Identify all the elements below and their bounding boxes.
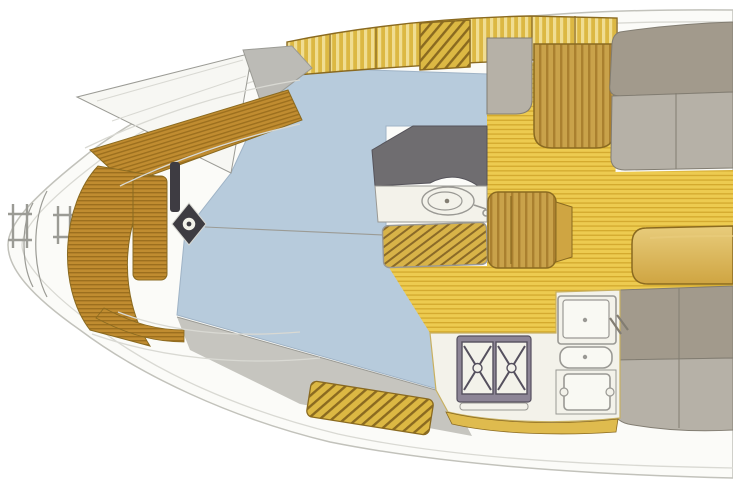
seat-locker-side bbox=[556, 202, 572, 262]
settee-cushion bbox=[613, 358, 733, 431]
settee-backrest bbox=[609, 286, 733, 360]
seat-locker-box bbox=[488, 192, 556, 268]
burner-right bbox=[507, 364, 516, 373]
port-berth bbox=[610, 22, 733, 170]
wheel-center-dot bbox=[187, 222, 192, 227]
yacht-floorplan-canvas bbox=[0, 0, 733, 488]
icebox bbox=[556, 370, 616, 414]
wood-seat-locker bbox=[488, 192, 572, 268]
stove bbox=[457, 336, 531, 410]
floorplan-drawing bbox=[0, 0, 733, 488]
head-compartment bbox=[372, 126, 489, 268]
steps-slats bbox=[420, 20, 470, 70]
lid-notch-right bbox=[606, 388, 614, 396]
table-top bbox=[632, 226, 733, 284]
lid-notch-left bbox=[560, 388, 568, 396]
grate-slats bbox=[382, 222, 487, 268]
port-berth-backrest bbox=[610, 22, 733, 96]
burner-left bbox=[473, 364, 482, 373]
nav-seat bbox=[487, 38, 532, 114]
toilet-drain bbox=[445, 199, 450, 204]
shower-grate bbox=[382, 222, 487, 268]
saloon-table bbox=[632, 226, 733, 284]
port-berth-cushion bbox=[611, 92, 733, 170]
companionway-steps bbox=[420, 20, 470, 70]
sink-drain-large bbox=[583, 318, 587, 322]
starboard-settee bbox=[609, 286, 733, 431]
stove-handrail bbox=[460, 403, 528, 410]
chart-table bbox=[534, 44, 614, 148]
helm-pedestal bbox=[170, 162, 180, 212]
icebox-lid bbox=[564, 374, 610, 410]
sink-drain-small bbox=[583, 355, 587, 359]
cockpit-table bbox=[133, 176, 167, 280]
